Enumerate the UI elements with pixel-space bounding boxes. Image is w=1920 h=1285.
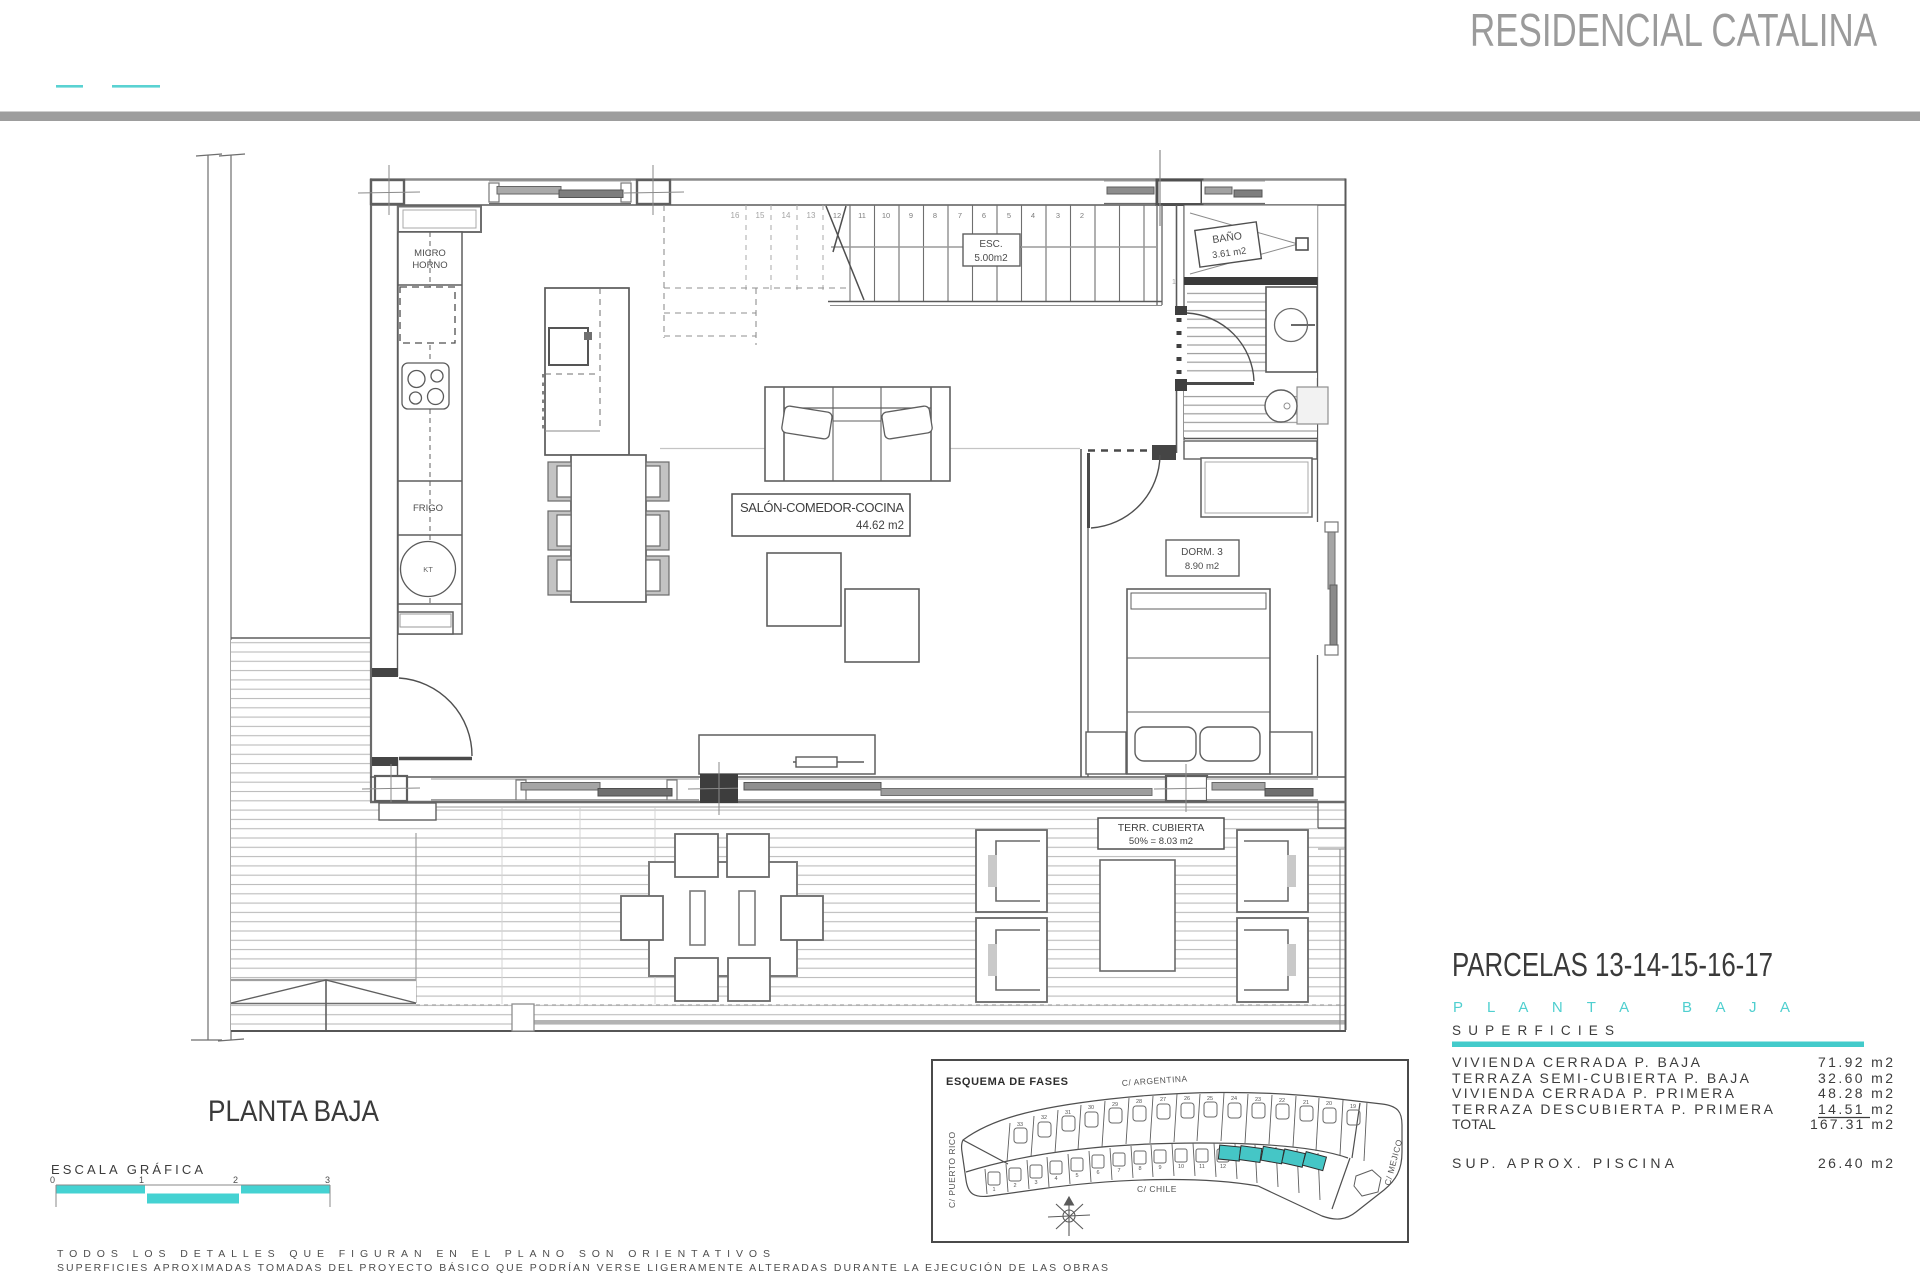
svg-text:7: 7 [1117,1168,1120,1174]
svg-text:C/ PUERTO RICO: C/ PUERTO RICO [947,1131,957,1208]
svg-text:8: 8 [933,211,937,220]
svg-text:SALÓN-COMEDOR-COCINA: SALÓN-COMEDOR-COCINA [740,500,904,515]
svg-text:27: 27 [1160,1097,1166,1103]
svg-text:1: 1 [1172,279,1176,286]
svg-text:ESQUEMA DE FASES: ESQUEMA DE FASES [946,1076,1068,1088]
svg-text:29: 29 [1112,1102,1118,1108]
svg-text:3: 3 [325,1175,330,1185]
svg-text:HORNO: HORNO [412,260,447,271]
svg-text:19: 19 [1350,1104,1356,1110]
svg-text:6: 6 [1096,1170,1099,1176]
svg-text:MICRO: MICRO [414,248,446,259]
svg-text:8.90 m2: 8.90 m2 [1185,561,1219,572]
svg-text:11: 11 [858,211,866,220]
svg-text:25: 25 [1207,1096,1213,1102]
svg-text:3: 3 [1034,1180,1037,1186]
svg-text:11: 11 [1199,1164,1205,1170]
svg-text:TOTAL: TOTAL [1452,1116,1496,1132]
svg-text:1: 1 [992,1187,995,1193]
svg-text:167.31 m2: 167.31 m2 [1810,1116,1893,1132]
svg-text:16: 16 [731,211,740,220]
svg-text:PARCELAS 13-14-15-16-17: PARCELAS 13-14-15-16-17 [1452,946,1773,983]
svg-text:48.28 m2: 48.28 m2 [1818,1085,1893,1101]
svg-text:ESC.: ESC. [979,239,1002,250]
svg-text:30: 30 [1088,1105,1094,1111]
svg-text:9: 9 [909,211,913,220]
svg-text:1: 1 [139,1175,144,1185]
svg-text:26.40 m2: 26.40 m2 [1818,1155,1893,1171]
svg-text:14: 14 [782,211,791,220]
svg-text:26: 26 [1184,1096,1190,1102]
svg-text:15: 15 [756,211,765,220]
svg-text:PLANTA BAJA: PLANTA BAJA [208,1095,379,1128]
svg-text:6: 6 [982,211,986,220]
svg-text:4: 4 [1054,1176,1057,1182]
svg-text:5.00m2: 5.00m2 [974,253,1008,264]
svg-text:12: 12 [833,211,841,220]
svg-text:2: 2 [1080,211,1084,220]
svg-text:28: 28 [1136,1099,1142,1105]
svg-text:32: 32 [1041,1115,1047,1121]
svg-text:RESIDENCIAL CATALINA: RESIDENCIAL CATALINA [1470,4,1877,56]
svg-text:8: 8 [1138,1166,1141,1172]
svg-text:3: 3 [1056,211,1060,220]
svg-text:0: 0 [50,1175,55,1185]
svg-text:24: 24 [1231,1096,1237,1102]
svg-text:50% = 8.03 m2: 50% = 8.03 m2 [1129,836,1193,847]
svg-text:32.60 m2: 32.60 m2 [1818,1070,1893,1086]
svg-text:33: 33 [1017,1122,1023,1128]
svg-text:5: 5 [1075,1173,1078,1179]
svg-text:KT: KT [423,565,433,574]
svg-text:FRIGO: FRIGO [413,503,443,514]
svg-text:10: 10 [1178,1164,1184,1170]
svg-text:23: 23 [1255,1097,1261,1103]
svg-text:4: 4 [1031,211,1035,220]
svg-text:VIVIENDA CERRADA P. BAJA: VIVIENDA CERRADA P. BAJA [1452,1054,1701,1070]
svg-text:TERRAZA DESCUBIERTA P. PRIMERA: TERRAZA DESCUBIERTA P. PRIMERA [1452,1101,1774,1117]
svg-text:31: 31 [1065,1110,1071,1116]
svg-text:12: 12 [1220,1164,1226,1170]
svg-text:21: 21 [1303,1100,1309,1106]
svg-text:20: 20 [1326,1101,1332,1107]
svg-text:2: 2 [1013,1183,1016,1189]
svg-text:VIVIENDA CERRADA P. PRIMERA: VIVIENDA CERRADA P. PRIMERA [1452,1085,1735,1101]
svg-text:C/ CHILE: C/ CHILE [1137,1184,1177,1194]
svg-text:13: 13 [807,211,816,220]
svg-text:22: 22 [1279,1098,1285,1104]
svg-text:2: 2 [233,1175,238,1185]
svg-text:5: 5 [1007,211,1011,220]
svg-text:14.51 m2: 14.51 m2 [1818,1101,1893,1117]
svg-text:TERR. CUBIERTA: TERR. CUBIERTA [1118,822,1205,834]
svg-text:10: 10 [882,211,890,220]
svg-text:DORM. 3: DORM. 3 [1181,547,1223,558]
svg-text:71.92 m2: 71.92 m2 [1818,1054,1893,1070]
svg-text:7: 7 [958,211,962,220]
svg-text:44.62 m2: 44.62 m2 [856,520,904,532]
svg-text:9: 9 [1158,1165,1161,1171]
